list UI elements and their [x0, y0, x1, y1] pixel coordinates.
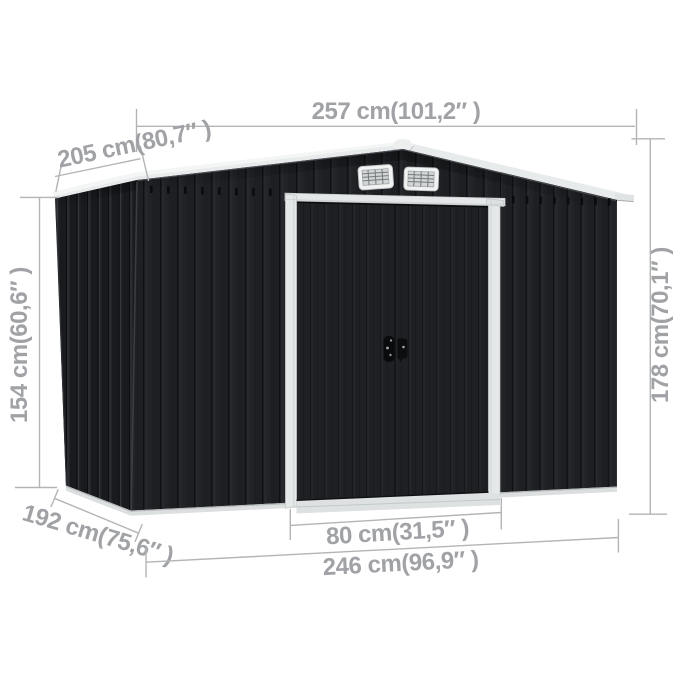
- svg-text:154 cm(60,6″ ): 154 cm(60,6″ ): [6, 267, 33, 423]
- svg-text:257 cm(101,2″ ): 257 cm(101,2″ ): [312, 98, 481, 125]
- svg-text:178 cm(70,1″ ): 178 cm(70,1″ ): [647, 247, 674, 403]
